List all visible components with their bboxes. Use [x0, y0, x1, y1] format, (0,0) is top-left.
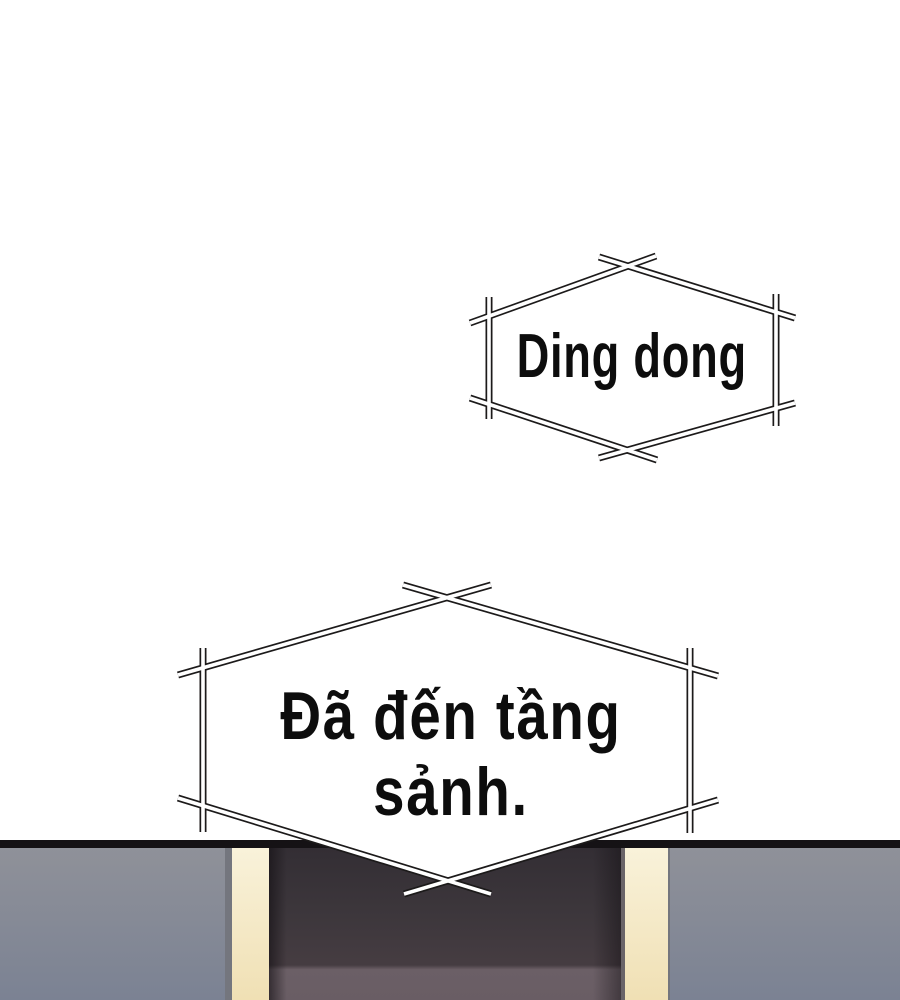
lobby-wall-right: [670, 848, 900, 1000]
lobby-wall-left: [0, 848, 225, 1000]
elevator-doorway: [269, 848, 621, 1000]
caption-text-line-1: Đã đến tầng: [260, 678, 642, 754]
caption-text-line-2: sảnh.: [260, 754, 642, 830]
caption-text: Đã đến tầng sảnh.: [221, 678, 681, 830]
elevator-scene: [0, 840, 900, 1000]
door-frame-trim-right: [621, 848, 670, 1000]
scene-columns: [0, 848, 900, 1000]
comic-panel: Ding dong Đã đến tầng sảnh.: [0, 0, 900, 1000]
door-frame-trim-left: [225, 848, 269, 1000]
sfx-text-label: Ding dong: [517, 326, 747, 388]
scene-divider-line: [0, 840, 900, 848]
sfx-text: Ding dong: [452, 326, 812, 388]
